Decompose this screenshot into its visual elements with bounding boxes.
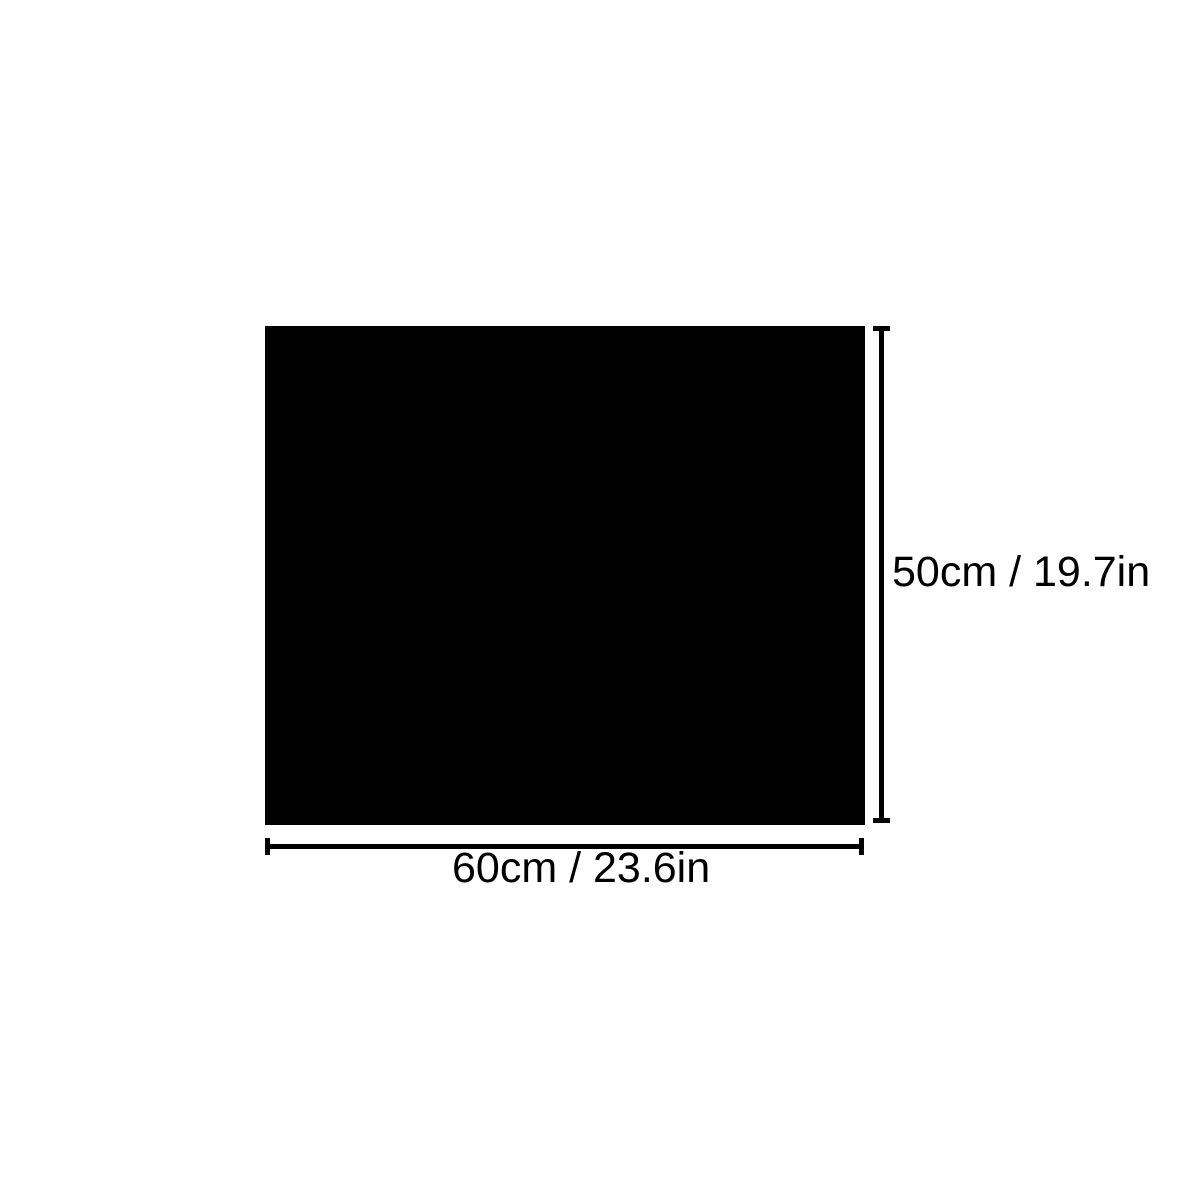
height-dimension-rule bbox=[879, 326, 884, 823]
height-dimension-line bbox=[873, 326, 890, 823]
height-dimension-cap-bottom bbox=[873, 818, 890, 823]
product-dimension-diagram: 50cm / 19.7in 60cm / 23.6in bbox=[0, 0, 1200, 1200]
height-dimension-label: 50cm / 19.7in bbox=[892, 551, 1150, 594]
product-swatch bbox=[265, 326, 865, 825]
width-dimension-cap-right bbox=[859, 838, 864, 855]
width-dimension-label: 60cm / 23.6in bbox=[452, 847, 710, 890]
